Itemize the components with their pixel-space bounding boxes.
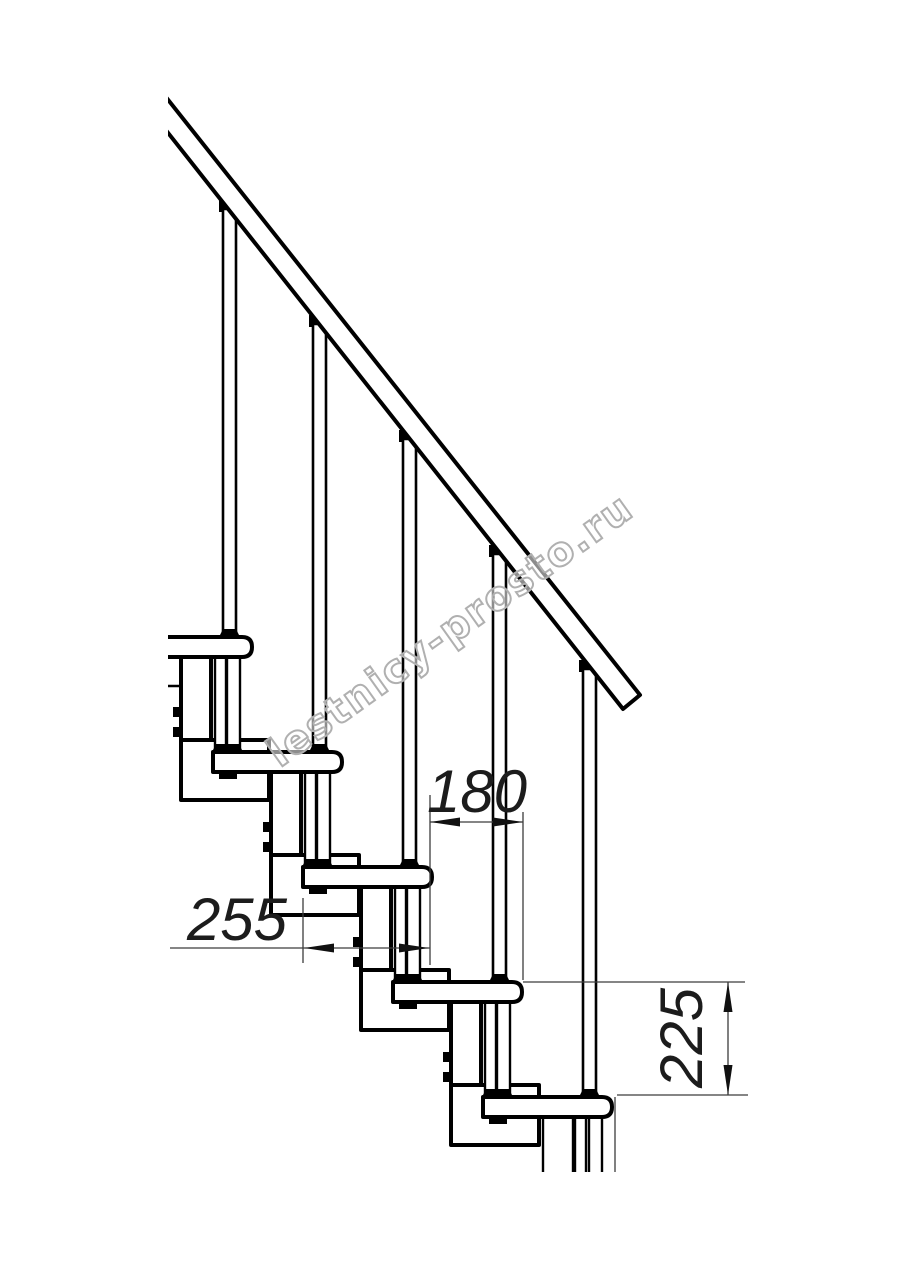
support-column (181, 657, 211, 740)
rod-cut (575, 1117, 602, 1172)
nut (219, 772, 237, 779)
rod (215, 657, 226, 752)
support-column (451, 1002, 481, 1085)
support-column (361, 887, 391, 970)
rod (395, 887, 406, 982)
rod (407, 887, 420, 982)
bolt-tab (173, 727, 182, 737)
baluster (223, 209, 236, 637)
rod (317, 772, 330, 867)
tread-3 (303, 867, 432, 887)
rod (497, 1002, 510, 1097)
arrow-up-icon (724, 982, 733, 1012)
dimension-label-180: 180 (427, 758, 527, 825)
baluster (583, 669, 596, 1097)
bolt-tab (353, 957, 362, 967)
bolt-tab (173, 707, 182, 717)
tread-4 (393, 982, 522, 1002)
bolt-tab (263, 822, 272, 832)
modular-staircase-drawing: 180 255 225 lestnicy-prosto.ru (0, 0, 914, 1280)
baluster (313, 324, 326, 752)
rod (485, 1002, 496, 1097)
arrow-left-icon (304, 944, 334, 953)
tread-1 (140, 637, 252, 657)
stair-drawing-page: 180 255 225 lestnicy-prosto.ru (0, 0, 914, 1280)
tread-5 (483, 1097, 612, 1117)
drawing-body (140, 77, 640, 1172)
nut (309, 887, 327, 894)
dimension-label-255: 255 (186, 886, 288, 953)
dimension-label-225: 225 (648, 987, 715, 1089)
bolt-tab (263, 842, 272, 852)
dimension-225: 225 (523, 982, 748, 1095)
support-column (271, 772, 301, 855)
bolt-tab (353, 937, 362, 947)
arrow-down-icon (724, 1065, 733, 1095)
dimension-180: 180 (427, 758, 527, 980)
bolt-tab (443, 1072, 452, 1082)
nut (399, 1002, 417, 1009)
rod (227, 657, 240, 752)
nut (489, 1117, 507, 1124)
rod (305, 772, 316, 867)
support-column-cut (543, 1117, 573, 1172)
bolt-tab (443, 1052, 452, 1062)
